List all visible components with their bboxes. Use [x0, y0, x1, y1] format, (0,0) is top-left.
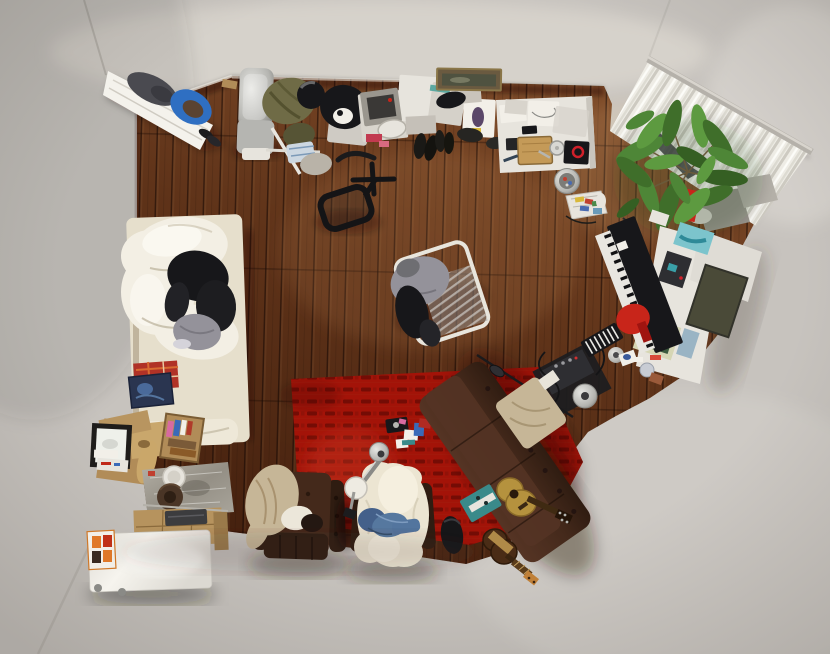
- caster: [94, 584, 102, 592]
- soft-floor-shadow: [120, 532, 480, 572]
- framed-painting: [437, 68, 501, 90]
- wooden-board: [518, 136, 553, 164]
- dark-cloth: [301, 514, 323, 532]
- black-notebook: [563, 140, 589, 164]
- red-print: [101, 462, 111, 465]
- white-desk-with-clutter: [496, 96, 596, 173]
- room-photo: [0, 0, 830, 654]
- soundhole: [510, 490, 519, 499]
- phone: [522, 125, 538, 134]
- metal-bin: [555, 169, 580, 194]
- tshirt-logo: [333, 108, 353, 124]
- caster: [118, 588, 126, 596]
- lamp-disc: [345, 477, 367, 499]
- room-photo-canvas: [0, 0, 830, 654]
- book-crate: [160, 414, 204, 463]
- plaid-blanket-and-blue-painting: [129, 360, 179, 408]
